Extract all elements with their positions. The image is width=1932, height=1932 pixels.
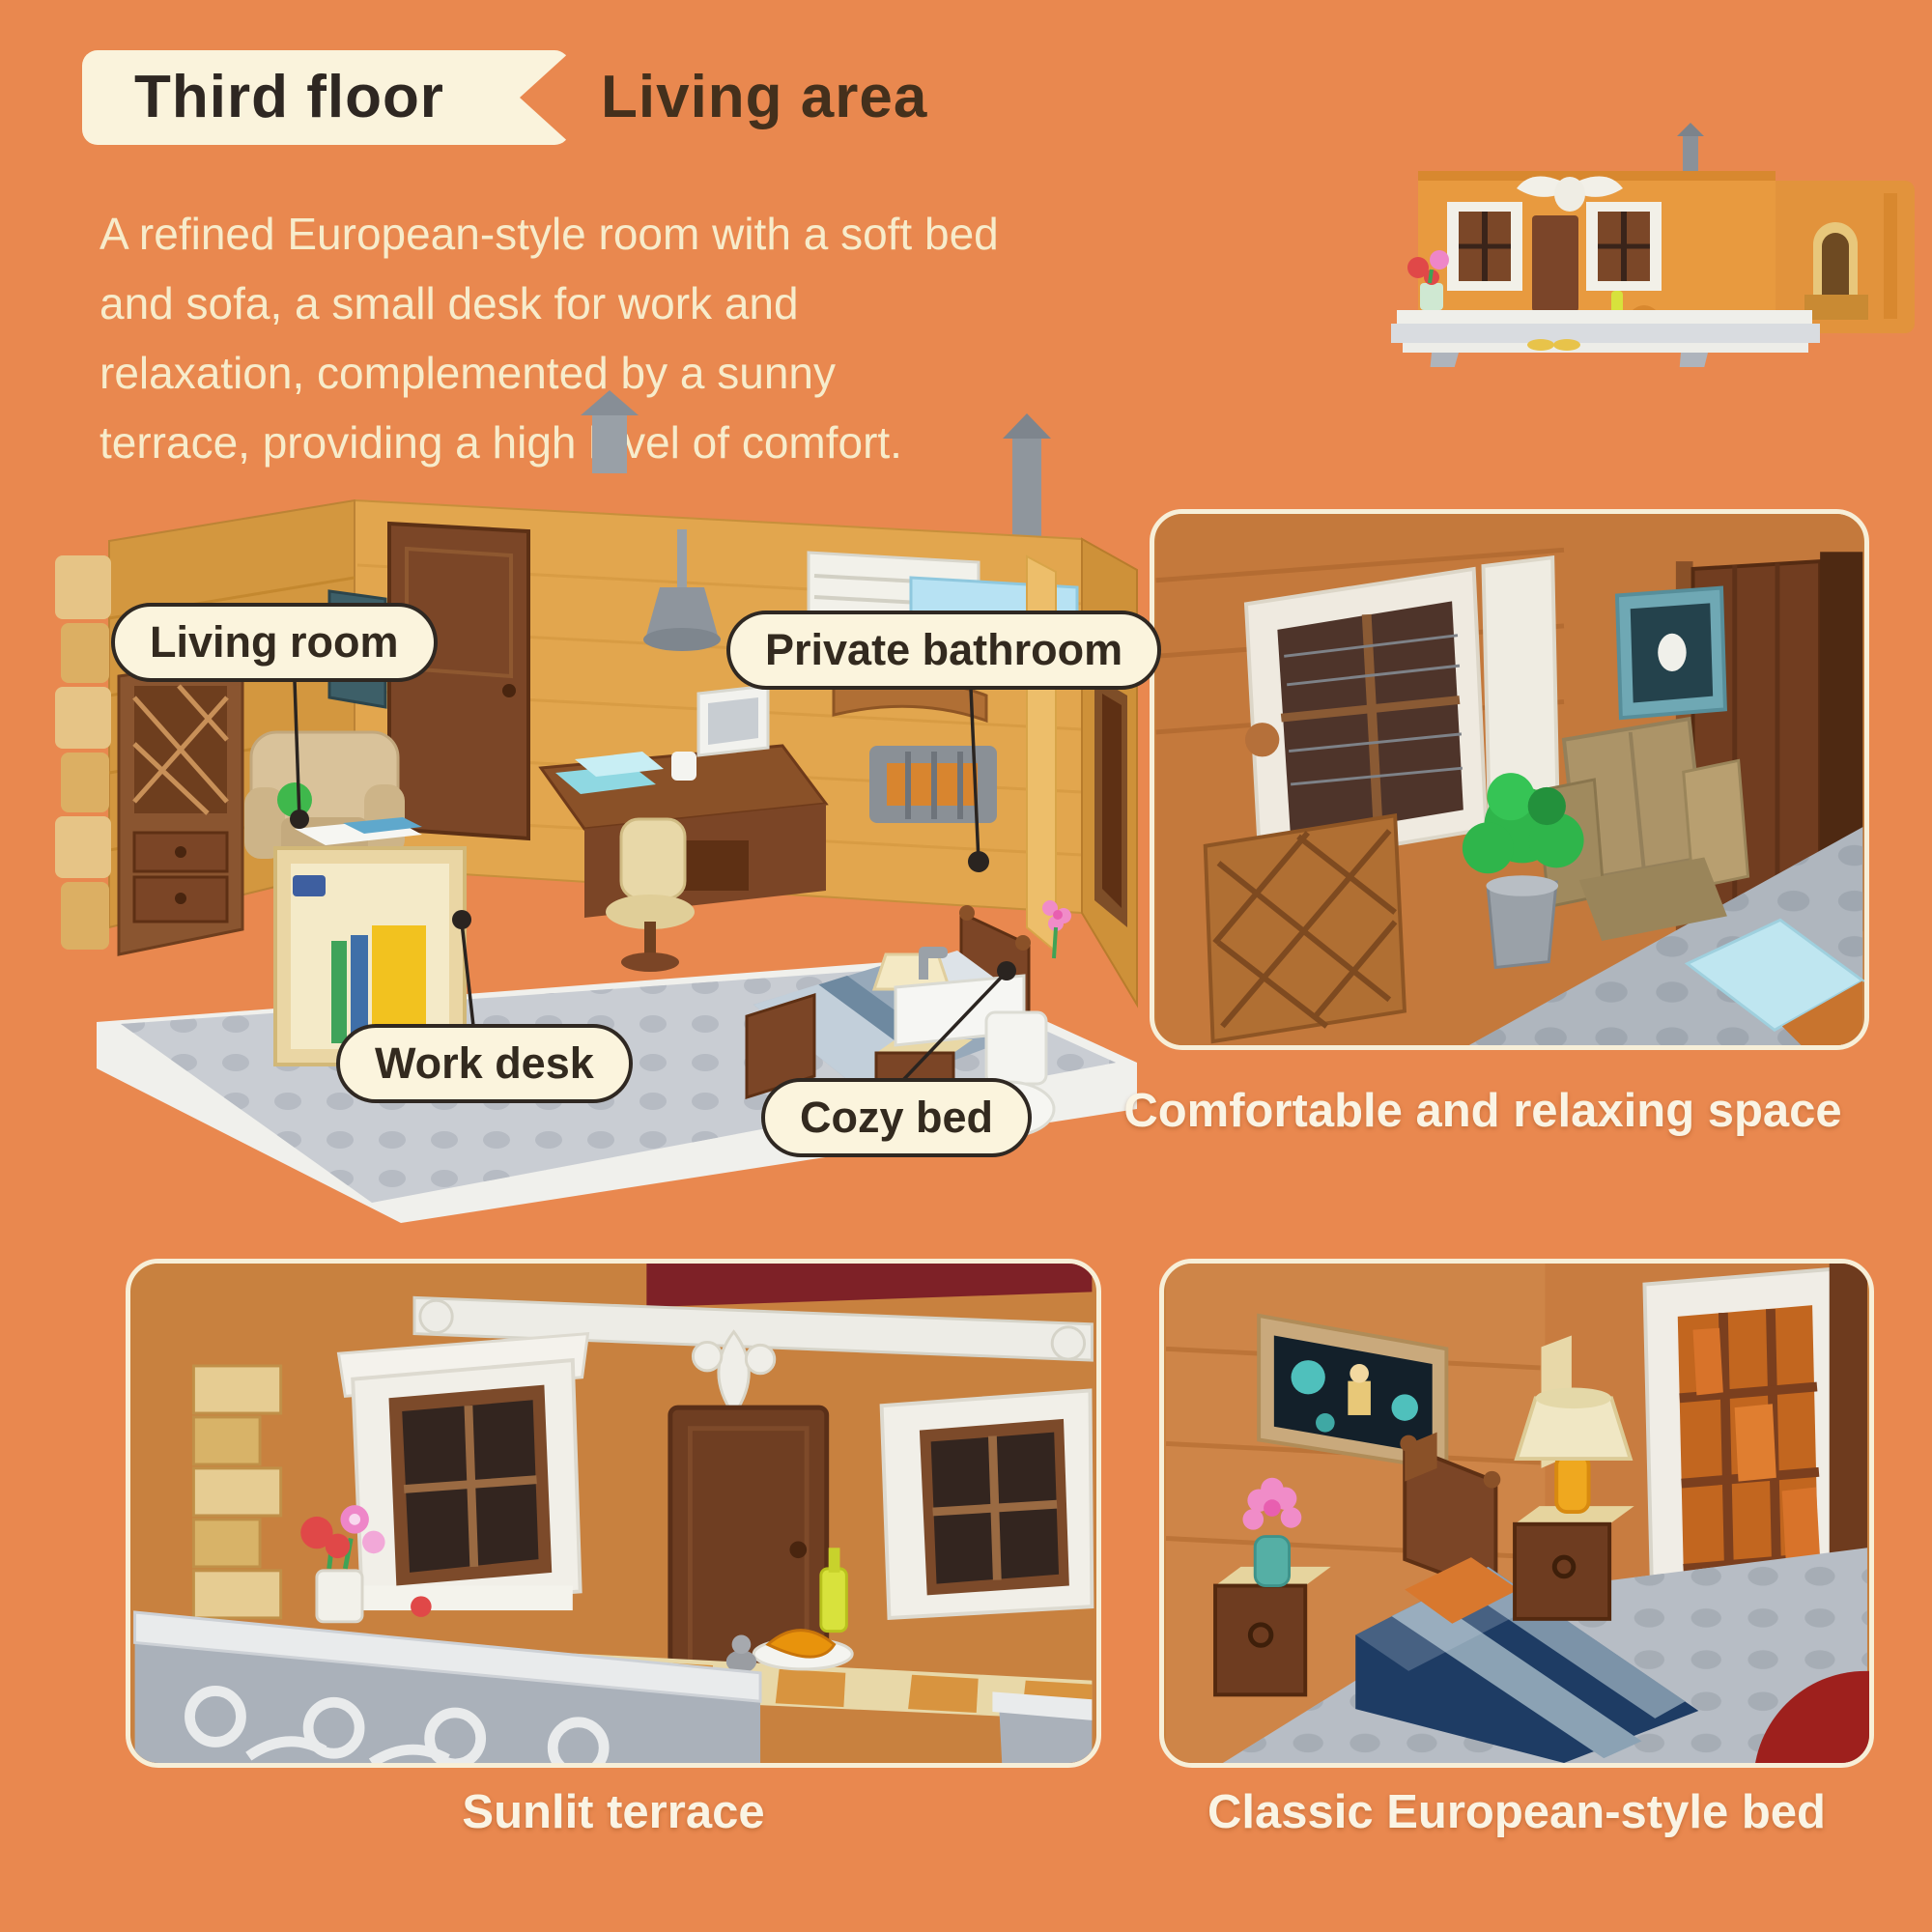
photo-comfortable-space xyxy=(1150,509,1869,1050)
callout-label: Private bathroom xyxy=(765,625,1122,674)
header-ribbon: Third floor xyxy=(82,50,570,145)
product-thumbnail-graphic xyxy=(1343,121,1922,367)
classic-bed-graphic xyxy=(1164,1264,1869,1763)
door xyxy=(1532,215,1578,312)
window xyxy=(1447,202,1522,291)
photo-sunlit-terrace xyxy=(126,1259,1101,1768)
roof-vent xyxy=(581,390,639,473)
callout-label: Living room xyxy=(150,617,399,667)
product-thumbnail xyxy=(1343,121,1922,367)
window xyxy=(339,1334,588,1610)
callout-living-room: Living room xyxy=(111,603,438,682)
floor-label: Third floor xyxy=(82,50,570,145)
window xyxy=(882,1390,1093,1617)
caption-comfortable-space: Comfortable and relaxing space xyxy=(1092,1084,1874,1138)
callout-label: Cozy bed xyxy=(800,1093,993,1142)
product-infographic-page: { "colors": { "background": "#E9884F", "… xyxy=(0,0,1932,1932)
window xyxy=(1586,202,1662,291)
area-label: Living area xyxy=(601,50,927,145)
comfortable-space-graphic xyxy=(1154,514,1864,1045)
main-facade xyxy=(1418,171,1776,325)
callout-work-desk: Work desk xyxy=(336,1024,633,1103)
wall-art xyxy=(1617,588,1725,719)
callout-label: Work desk xyxy=(375,1038,594,1088)
display-cabinet xyxy=(119,645,242,954)
description-line: and sofa, a small desk for work and xyxy=(99,269,1114,338)
description-line: A refined European-style room with a sof… xyxy=(99,199,1114,269)
right-outer-wall xyxy=(1082,539,1137,1005)
sunlit-terrace-graphic xyxy=(130,1264,1096,1763)
interior-door xyxy=(389,524,528,838)
lattice-cabinet xyxy=(1206,815,1405,1041)
quoin-bricks xyxy=(193,1366,280,1618)
caption-sunlit-terrace: Sunlit terrace xyxy=(126,1785,1101,1839)
callout-cozy-bed: Cozy bed xyxy=(761,1078,1032,1157)
photo-classic-bed xyxy=(1159,1259,1874,1768)
caption-classic-bed: Classic European-style bed xyxy=(1159,1785,1874,1839)
callout-private-bathroom: Private bathroom xyxy=(726,611,1161,690)
brick-pillar xyxy=(55,555,111,950)
